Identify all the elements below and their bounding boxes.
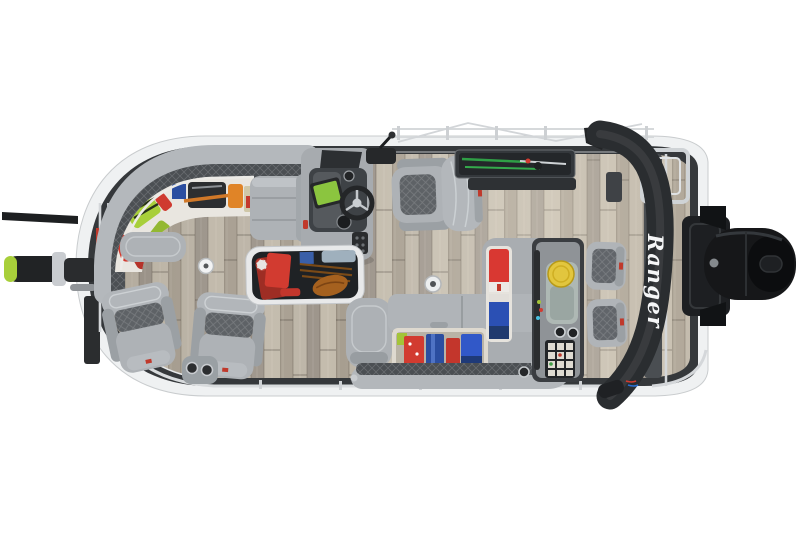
- console-badge: [303, 220, 308, 229]
- bimini-logo-text: Ranger: [643, 233, 668, 329]
- boat-scene: Ranger: [0, 0, 800, 533]
- aft-bench-lid: [388, 294, 540, 332]
- trolling-motor-tip: [4, 256, 17, 282]
- rod-locker-shelf: [468, 178, 576, 190]
- livewell-lid: [548, 261, 574, 287]
- pontoon-boat-overhead-photo: Ranger: [0, 0, 800, 533]
- in-floor-storage: [246, 245, 365, 305]
- bow-side-panel: [84, 296, 100, 364]
- tackle-organizer: [545, 340, 575, 378]
- corner-storage-gear: [489, 249, 509, 339]
- trolling-motor-mount: [64, 258, 96, 282]
- jump-seat-aft: [586, 298, 628, 347]
- rod-locker: [455, 150, 576, 190]
- stern-corner-panel: [606, 172, 622, 202]
- jump-seat-forward: [585, 241, 627, 290]
- rear-fishing-station: [532, 238, 584, 382]
